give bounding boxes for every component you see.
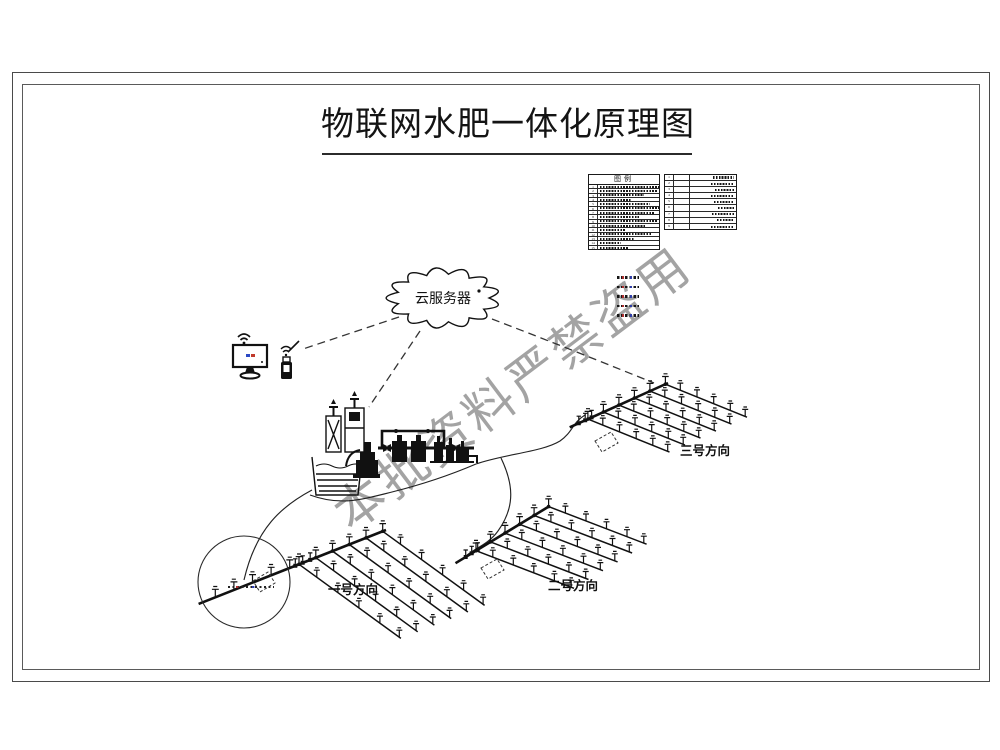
drawing-sheet: 物联网水肥一体化原理图 本批资料严禁盗用 云服务器: [0, 0, 1000, 750]
fields-layer: [199, 374, 749, 639]
schematic-canvas: 云服务器: [0, 0, 1000, 750]
legend-row-number: 2: [589, 189, 598, 192]
feed-line-field2: [466, 458, 511, 556]
mobile-terminal: [281, 341, 299, 379]
legend-row-text: [600, 238, 635, 240]
legend-symbol-cell: [674, 199, 690, 204]
field-lateral-pipes: [476, 507, 647, 589]
phone-screen: [284, 365, 290, 372]
legend-symbol-cell: [674, 212, 690, 217]
legend-row-number: 7: [589, 211, 598, 214]
legend-row-text: [712, 213, 734, 215]
legend-row-number: 9: [589, 220, 598, 223]
cloud-server-label: 云服务器: [415, 291, 471, 307]
legend-row-number: 4: [589, 198, 598, 201]
legend-row-number: 13: [589, 237, 598, 240]
legend-note-dash: [617, 295, 639, 298]
legend-row-text: [600, 220, 659, 222]
legend-row-text: [600, 216, 639, 218]
legend-row-number: 7: [665, 212, 674, 217]
legend-row: 15: [589, 246, 659, 250]
legend-symbol-cell: [674, 181, 690, 186]
field-3-label: 三号方向: [680, 443, 730, 458]
control-skid: [434, 436, 469, 462]
legend-symbol-cell: [674, 205, 690, 210]
legend-row-number: 8: [665, 218, 674, 223]
legend-row-text: [600, 190, 657, 192]
legend-row-text: [711, 195, 734, 197]
screen-pixel-blue: [246, 354, 250, 357]
legend-row-number: 5: [665, 199, 674, 204]
monitor-base: [241, 373, 260, 379]
legend-row-text: [711, 183, 734, 185]
legend-row-text: [711, 226, 734, 228]
field-2-label: 二号方向: [548, 578, 598, 593]
pump-station: [312, 391, 477, 495]
legend-row-number: 10: [589, 224, 598, 227]
legend-row-text: [600, 186, 660, 188]
legend-row-text: [600, 229, 627, 231]
legend-row-text: [600, 199, 632, 201]
legend-row-text: [600, 207, 660, 209]
legend-row-text: [600, 242, 621, 244]
legend-row-number: 15: [589, 246, 598, 250]
legend-symbol-cell: [674, 218, 690, 223]
screen-pixel-red: [251, 354, 255, 357]
legend-row-number: 2: [665, 181, 674, 186]
legend-row-text: [600, 233, 652, 235]
legend-row-text: [600, 203, 650, 205]
legend-note-dash: [617, 276, 639, 279]
monitor-power-dot: [261, 361, 263, 363]
legend-row-text: [715, 189, 734, 191]
legend-row-text: [713, 176, 734, 178]
legend-right-body: 123456789: [665, 175, 736, 230]
legend-row-number: 12: [589, 233, 598, 236]
feed-line-field3: [476, 415, 585, 464]
legend-table-secondary: 123456789: [664, 174, 737, 230]
legend-symbol-cell: [674, 224, 690, 230]
wifi-dot: [285, 354, 287, 356]
link-cloud-to-station: [369, 331, 420, 407]
legend-title: 图例: [589, 175, 659, 185]
cloud-dot: [477, 289, 480, 292]
legend-note-dash: [617, 305, 639, 308]
legend-note-dash: [617, 286, 639, 289]
sprinkler-icons: [212, 521, 486, 637]
link-cloud-to-field3: [492, 319, 654, 383]
legend-row-number: 14: [589, 241, 598, 244]
legend-row-text: [600, 194, 645, 196]
legend-left-body: 123456789101112131415: [589, 185, 659, 250]
legend-row-number: 4: [665, 193, 674, 198]
cloud-server: 云服务器: [386, 268, 498, 328]
legend-row-number: 3: [589, 194, 598, 197]
wifi-icon: [238, 334, 250, 340]
detail-callout-circle: [198, 536, 290, 628]
pump-icon: [353, 442, 380, 478]
legend-row-text: [717, 219, 734, 221]
legend-row-number: 6: [589, 207, 598, 210]
link-cloud-to-pc: [303, 317, 399, 349]
fertilizer-tank-1: [326, 399, 341, 452]
legend-row-number: 11: [589, 228, 598, 231]
legend-row-text: [600, 225, 646, 227]
legend-symbol-cell: [674, 187, 690, 192]
fertilizer-tank-2: [345, 391, 364, 452]
legend-row-text: [718, 207, 734, 209]
field-1-label: 一号方向: [328, 582, 378, 597]
phone-cap: [283, 357, 290, 362]
legend-row: 9: [665, 224, 736, 230]
field-2-grid: [456, 496, 647, 588]
legend-row-text: [714, 201, 734, 203]
legend-table-main: 图例 123456789101112131415: [588, 174, 660, 250]
pc-terminal: [233, 334, 267, 379]
legend-row-number: 9: [665, 224, 674, 230]
field-1-grid: [199, 521, 487, 638]
legend-symbol-cell: [674, 175, 690, 180]
antenna-slash: [288, 341, 299, 352]
legend-row-number: 1: [589, 185, 598, 188]
legend-row-text: [600, 247, 629, 249]
legend-row-text: [600, 212, 655, 214]
legend-row-number: 8: [589, 215, 598, 218]
legend-note-dashes: [617, 276, 639, 324]
legend-note-dash: [617, 314, 639, 317]
legend-row-number: 3: [665, 187, 674, 192]
legend-symbol-cell: [674, 193, 690, 198]
legend-row-number: 1: [665, 175, 674, 180]
legend-row-number: 6: [665, 205, 674, 210]
legend-row-number: 5: [589, 202, 598, 205]
